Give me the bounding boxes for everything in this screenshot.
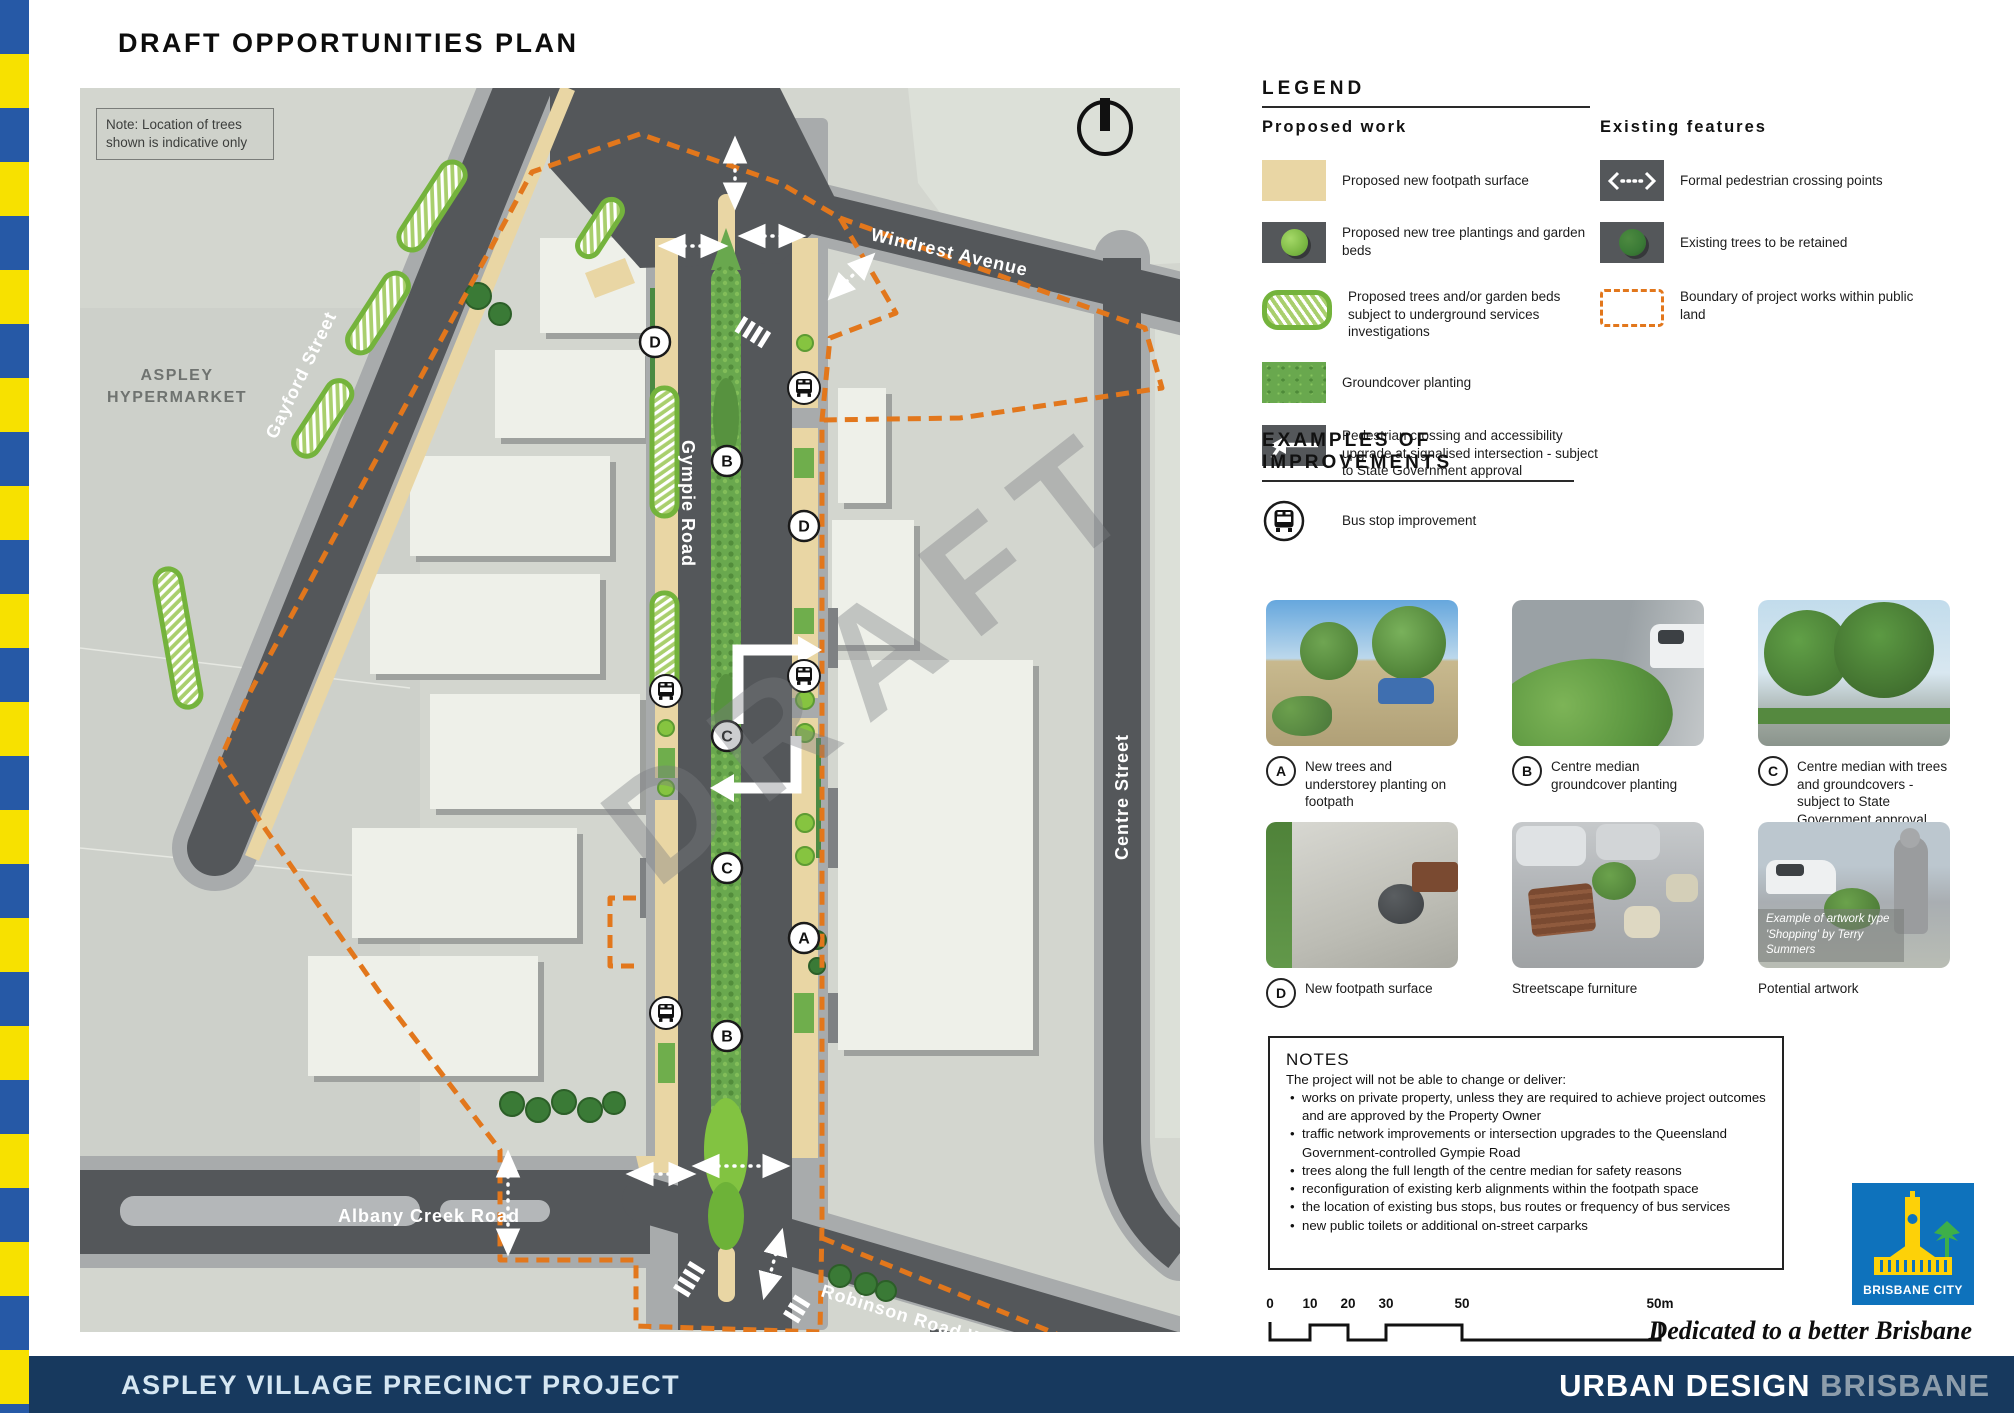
legend-item-label: Proposed new tree plantings and garden b… xyxy=(1342,222,1592,259)
example-caption: New footpath surface xyxy=(1305,978,1433,998)
legend-item-label: Bus stop improvement xyxy=(1342,500,1476,530)
notes-bullet: the location of existing bus stops, bus … xyxy=(1286,1198,1766,1216)
hedge-shape xyxy=(1266,822,1292,968)
example-photo-median-trees xyxy=(1758,600,1950,746)
example-caption: New trees and understorey planting on fo… xyxy=(1305,756,1458,811)
map-marker-letter: D xyxy=(798,519,810,536)
example-photo-potential-artwork: Example of artwork type 'Shopping' by Te… xyxy=(1758,822,1950,968)
label-centre-street: Centre Street xyxy=(1112,734,1132,860)
example-photo-median-groundcover xyxy=(1512,600,1704,746)
shrub-shape xyxy=(1272,696,1332,736)
example-caption: Streetscape furniture xyxy=(1512,978,1637,998)
example-caption: Potential artwork xyxy=(1758,978,1859,998)
car-shape xyxy=(1516,826,1586,866)
map-marker-letter: A xyxy=(798,931,810,948)
legend-item-groundcover: Groundcover planting xyxy=(1262,362,1592,403)
scale-label: 20 xyxy=(1340,1296,1355,1311)
council-tagline: Dedicated to a better Brisbane xyxy=(1552,1316,1972,1346)
logo-wordmark: BRISBANE CITY xyxy=(1852,1283,1974,1297)
map-note: Note: Location of trees shown is indicat… xyxy=(96,108,274,160)
brisbane-city-logo: BRISBANE CITY xyxy=(1852,1183,1974,1305)
hedge-shape xyxy=(1758,708,1950,724)
map-marker-letter: C xyxy=(721,729,733,746)
example-caption: Centre median with trees and groundcover… xyxy=(1797,756,1950,828)
bus-legend-icon xyxy=(1262,500,1326,541)
artwork-overlay-line: Example of artwork type xyxy=(1766,912,1896,928)
bus-icon xyxy=(1262,499,1306,543)
example-card-b: B Centre median groundcover planting xyxy=(1512,600,1704,793)
groundcover-swatch xyxy=(1262,362,1326,403)
legend-item-label: Groundcover planting xyxy=(1342,362,1471,392)
bench-shape xyxy=(1528,883,1597,937)
legend-item-existing-trees: Existing trees to be retained xyxy=(1600,222,1920,263)
page-title: DRAFT OPPORTUNITIES PLAN xyxy=(118,28,579,59)
new-tree-swatch xyxy=(1262,222,1326,263)
example-photo-footpath-surface xyxy=(1266,822,1458,968)
car-window-shape xyxy=(1658,630,1684,644)
notes-bullet: works on private property, unless they a… xyxy=(1286,1089,1766,1125)
examples-heading: EXAMPLES OF IMPROVEMENTS xyxy=(1262,430,1574,482)
hatched-pill-swatch xyxy=(1262,290,1332,330)
map-marker-letter: C xyxy=(721,861,733,878)
example-card-furniture: Streetscape furniture xyxy=(1512,822,1704,998)
legend-item-crossing-points: Formal pedestrian crossing points xyxy=(1600,160,1920,201)
tree-blob xyxy=(1372,606,1446,680)
tree-blob xyxy=(1300,622,1358,680)
example-card-c: C Centre median with trees and groundcov… xyxy=(1758,600,1950,828)
legend-item-label: Proposed trees and/or garden beds subjec… xyxy=(1348,286,1592,341)
footer-department: URBAN DESIGN BRISBANE xyxy=(1559,1368,1990,1404)
scale-label: 30 xyxy=(1378,1296,1393,1311)
scale-label: 50 xyxy=(1454,1296,1469,1311)
notes-intro: The project will not be able to change o… xyxy=(1286,1072,1766,1087)
legend-existing-heading: Existing features xyxy=(1600,118,1767,137)
boundary-swatch xyxy=(1600,289,1664,327)
footer-project-title: ASPLEY VILLAGE PRECINCT PROJECT xyxy=(121,1370,680,1401)
tree-blob xyxy=(1834,602,1934,698)
example-photo-footpath-trees xyxy=(1266,600,1458,746)
car-window-shape xyxy=(1776,864,1804,876)
car-shape xyxy=(1596,824,1660,860)
example-letter-a: A xyxy=(1266,756,1296,786)
notes-bullet: reconfiguration of existing kerb alignme… xyxy=(1286,1180,1766,1198)
example-card-a: A New trees and understorey planting on … xyxy=(1266,600,1458,811)
legend-item-tree-plantings: Proposed new tree plantings and garden b… xyxy=(1262,222,1592,263)
bench-shape xyxy=(1412,862,1458,892)
notes-list: works on private property, unless they a… xyxy=(1286,1089,1766,1235)
label-albany-creek-road: Albany Creek Road xyxy=(338,1206,520,1226)
example-photo-streetscape-furniture xyxy=(1512,822,1704,968)
footpath-swatch xyxy=(1262,160,1326,201)
double-arrow-icon xyxy=(1603,167,1661,195)
scale-label: 50m xyxy=(1646,1296,1673,1311)
map-marker-letter: B xyxy=(721,1029,733,1046)
notes-bullet: new public toilets or additional on-stre… xyxy=(1286,1217,1766,1235)
shrub-shape xyxy=(1592,862,1636,900)
example-letter-c: C xyxy=(1758,756,1788,786)
example-letter-b: B xyxy=(1512,756,1542,786)
legend-item-investigation-beds: Proposed trees and/or garden beds subjec… xyxy=(1262,286,1592,341)
statue-head-shape xyxy=(1900,828,1920,848)
notes-heading: NOTES xyxy=(1286,1050,1766,1070)
legend-item-label: Existing trees to be retained xyxy=(1680,222,1847,252)
notes-bullet: traffic network improvements or intersec… xyxy=(1286,1125,1766,1161)
footer-bar: ASPLEY VILLAGE PRECINCT PROJECT URBAN DE… xyxy=(29,1356,2014,1413)
label-aspley-hypermarket: ASPLEY xyxy=(140,367,213,384)
label-gympie-road: Gympie Road xyxy=(678,440,698,567)
stone-seat-shape xyxy=(1666,874,1698,902)
legend-heading: LEGEND xyxy=(1262,78,1590,108)
legend-item-label: Proposed new footpath surface xyxy=(1342,160,1529,190)
legend-item-boundary: Boundary of project works within public … xyxy=(1600,286,1920,327)
legend-item-label: Formal pedestrian crossing points xyxy=(1680,160,1883,190)
footer-urban-design: URBAN DESIGN xyxy=(1559,1368,1810,1403)
stone-seat-shape xyxy=(1624,906,1660,938)
plan-map: D B D C C A B Gayford Street Windrest Av… xyxy=(80,88,1180,1332)
label-aspley-hypermarket: HYPERMARKET xyxy=(107,389,247,406)
scale-label: 0 xyxy=(1266,1296,1274,1311)
example-letter-d: D xyxy=(1266,978,1296,1008)
example-caption: Centre median groundcover planting xyxy=(1551,756,1704,793)
map-panel: D B D C C A B Gayford Street Windrest Av… xyxy=(80,88,1180,1332)
notes-box: NOTES The project will not be able to ch… xyxy=(1268,1036,1784,1270)
decorative-side-strip xyxy=(0,0,29,1413)
scale-label: 10 xyxy=(1302,1296,1317,1311)
legend-item-label: Boundary of project works within public … xyxy=(1680,286,1920,323)
artwork-overlay-caption: Example of artwork type 'Shopping' by Te… xyxy=(1758,909,1904,962)
example-card-artwork: Example of artwork type 'Shopping' by Te… xyxy=(1758,822,1950,998)
legend-item-bus-stop: Bus stop improvement xyxy=(1262,500,1592,541)
crossing-points-swatch xyxy=(1600,160,1664,201)
car-shape xyxy=(1378,678,1434,704)
notes-bullet: trees along the full length of the centr… xyxy=(1286,1162,1766,1180)
map-marker-letter: B xyxy=(721,454,733,471)
artwork-overlay-line: 'Shopping' by Terry Summers xyxy=(1766,928,1896,959)
existing-tree-swatch xyxy=(1600,222,1664,263)
legend-proposed-heading: Proposed work xyxy=(1262,118,1407,137)
legend-item-footpath: Proposed new footpath surface xyxy=(1262,160,1592,201)
example-card-d: D New footpath surface xyxy=(1266,822,1458,1008)
map-marker-letter: D xyxy=(649,335,661,352)
footer-brisbane: BRISBANE xyxy=(1820,1368,1990,1403)
